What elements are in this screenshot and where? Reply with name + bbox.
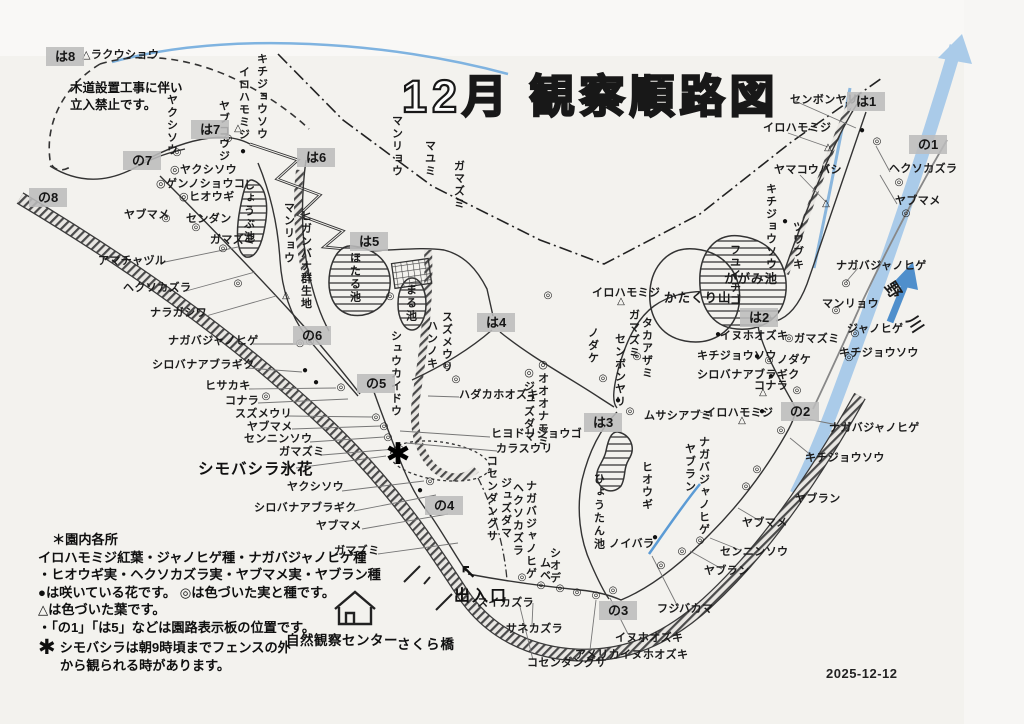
legend-lines: イロハモミジ紅葉・ジャノヒゲ種・ナガバジャノヒゲ種・ヒオウギ実・ヘクソカズラ実・… bbox=[38, 549, 381, 637]
plant-label: ヘクソカズラ bbox=[511, 482, 523, 557]
plant-label: センボンヤリ bbox=[613, 333, 625, 408]
plant-label: ツワブキ bbox=[791, 221, 803, 271]
ring-marker-icon: ◎ bbox=[599, 374, 608, 384]
route-sign-は6: は6 bbox=[297, 148, 335, 167]
plant-label: ナラガシワ bbox=[150, 308, 207, 320]
trails bbox=[140, 104, 947, 600]
plant-label: キチジョウソウ bbox=[255, 53, 267, 141]
ring-marker-icon: ◎ bbox=[337, 383, 346, 393]
plant-label: ナガバジャノヒゲ bbox=[697, 436, 709, 536]
legend-block: ＊園内各所 イロハモミジ紅葉・ジャノヒゲ種・ナガバジャノヒゲ種・ヒオウギ実・ヘク… bbox=[38, 531, 381, 674]
ring-marker-icon: ◎ bbox=[696, 536, 705, 546]
plant-label: ヒサカキ bbox=[205, 381, 251, 393]
plant-label: ガマズミ bbox=[794, 334, 840, 346]
plant-label: ヤマコウバシ bbox=[774, 165, 842, 177]
route-sign-の6: の6 bbox=[293, 326, 331, 345]
tri-marker-icon: △ bbox=[282, 291, 290, 301]
plant-label: イロハモミジ bbox=[592, 288, 660, 300]
ring-marker-icon: ◎ bbox=[537, 581, 546, 591]
plant-label: ◎オオオナモミ bbox=[536, 358, 548, 448]
plant-label: ムサシアブミ bbox=[644, 411, 712, 423]
plant-label: イヌホオズキ bbox=[615, 633, 683, 645]
legend-frost-note-1: シモバシラは朝9時頃までフェンスの外 bbox=[60, 639, 291, 657]
plant-label: コセンダングサ bbox=[485, 455, 497, 543]
plant-label: イヌホオズキ bbox=[720, 331, 788, 343]
ring-marker-icon: ◎ bbox=[873, 137, 882, 147]
ring-marker-icon: ◎ bbox=[380, 422, 389, 432]
route-sign-の7: の7 bbox=[123, 151, 161, 170]
plant-label: ほたる池 bbox=[348, 252, 360, 304]
plant-label: しょうぶ池 bbox=[242, 179, 254, 244]
plant-label: ◎ヤクシソウ bbox=[170, 165, 237, 177]
plant-label: フユイチゴ bbox=[728, 244, 740, 307]
plant-label: センダン bbox=[186, 214, 232, 226]
route-sign-の1: の1 bbox=[909, 135, 947, 154]
tri-marker-icon: △ bbox=[824, 143, 832, 153]
plant-label: ヤクシソウ bbox=[287, 482, 344, 494]
plant-label: フジバカマ bbox=[657, 604, 713, 616]
ring-marker-icon: ◎ bbox=[234, 279, 243, 289]
route-sign-は2: は2 bbox=[740, 308, 778, 327]
entrance-label: 出入口 bbox=[454, 582, 508, 606]
legend-line: ●は咲いている花です。 ◎は色づいた実と種です。 bbox=[38, 584, 381, 602]
plant-label: ノダケ bbox=[586, 327, 598, 365]
plant-label: キチジョウソウ bbox=[839, 348, 919, 360]
ring-marker-icon: ◎ bbox=[777, 426, 786, 436]
ring-marker-icon: ◎ bbox=[592, 591, 601, 601]
construction-notice: 木道設置工事に伴い 立入禁止です。 bbox=[70, 80, 183, 114]
plant-label: ヤブマメ bbox=[742, 518, 788, 530]
plant-label: スズメウリ bbox=[440, 311, 452, 374]
legend-line: ・ヒオウギ実・ヘクソカズラ実・ヤブマメ実・ヤブラン種 bbox=[38, 566, 381, 584]
plant-label: スズメウリ bbox=[235, 409, 292, 421]
map-title: 12月 観察順路図 bbox=[402, 60, 780, 125]
plant-label: キチジョウソウ bbox=[805, 453, 885, 465]
plant-label: ◎ヒオウギ bbox=[179, 192, 235, 204]
ring-marker-icon: ◎ bbox=[842, 279, 851, 289]
plant-label: シロバナアブラギク bbox=[697, 370, 800, 382]
plant-label: コナラ bbox=[225, 396, 259, 408]
route-sign-は5: は5 bbox=[350, 232, 388, 251]
route-sign-の4: の4 bbox=[425, 496, 463, 515]
tri-marker-icon: △ bbox=[822, 199, 830, 209]
plant-label: マンリョウ bbox=[282, 202, 294, 265]
plant-label: ◎ジュズダマ bbox=[522, 366, 534, 443]
plant-label: ナガバジャノヒゲ bbox=[168, 336, 259, 348]
ring-marker-icon: ◎ bbox=[678, 547, 687, 557]
plant-label: △ラクウショウ bbox=[82, 50, 159, 62]
plant-label: ◎ゲンノショウコ bbox=[156, 179, 245, 191]
route-sign-の5: の5 bbox=[357, 374, 395, 393]
ring-marker-icon: ◎ bbox=[793, 386, 802, 396]
ring-marker-icon: ◎ bbox=[609, 586, 618, 596]
legend-frost-note-2: から観られる時があります。 bbox=[60, 657, 381, 675]
construction-notice-line2: 立入禁止です。 bbox=[70, 97, 183, 114]
dot-marker-icon: ● bbox=[302, 366, 308, 376]
frost-flower-label: シモバシラ氷花 bbox=[198, 457, 314, 479]
ring-marker-icon: ◎ bbox=[742, 482, 751, 492]
plant-label: キチジョウソウ bbox=[697, 351, 777, 363]
ring-marker-icon: ◎ bbox=[386, 292, 395, 302]
plant-label: ヤブマメ bbox=[124, 210, 170, 222]
plant-label: アマチャヅル bbox=[98, 256, 166, 268]
plant-label: キチジョウソウ bbox=[764, 183, 776, 271]
plant-label: ヤブラン bbox=[683, 443, 695, 493]
plant-label: サネカズラ bbox=[506, 624, 563, 636]
plant-label: ジュズダマ bbox=[499, 477, 511, 540]
plant-label: ナガバジャノヒゲ bbox=[829, 423, 920, 435]
route-sign-の2: の2 bbox=[781, 402, 819, 421]
plant-label: ヤブマメ bbox=[895, 196, 941, 208]
plant-label: まる池 bbox=[404, 284, 416, 323]
plant-label: マユミ bbox=[423, 140, 435, 178]
route-sign-は4: は4 bbox=[477, 313, 515, 332]
plant-label: センニンソウ bbox=[244, 434, 312, 446]
ring-marker-icon: ◎ bbox=[452, 375, 461, 385]
plant-label: ナガバジャノヒゲ bbox=[836, 261, 927, 273]
plant-label: ムベ bbox=[538, 557, 550, 582]
plant-label: シロバナアブラギク bbox=[254, 503, 357, 515]
ring-marker-icon: ◎ bbox=[262, 392, 271, 402]
plant-label: マンリョウ bbox=[390, 115, 402, 178]
plant-label: ジャノヒゲ bbox=[847, 324, 903, 336]
route-sign-は7: は7 bbox=[191, 120, 229, 139]
ring-marker-icon: ◎ bbox=[573, 588, 582, 598]
plant-label: ガマズミ bbox=[452, 160, 464, 210]
dot-marker-icon: ● bbox=[313, 378, 319, 388]
dot-marker-icon: ● bbox=[240, 147, 246, 157]
ring-marker-icon: ◎ bbox=[544, 291, 553, 301]
plant-label: ヤブラン bbox=[704, 566, 750, 578]
ring-marker-icon: ◎ bbox=[626, 407, 635, 417]
plant-label: ナガバジャノヒゲ bbox=[524, 480, 536, 580]
ring-marker-icon: ◎ bbox=[753, 465, 762, 475]
ring-marker-icon: ◎ bbox=[426, 477, 435, 487]
plant-label: ヤブマメ bbox=[247, 422, 293, 434]
plant-label: ハンノキ bbox=[425, 320, 437, 370]
ring-marker-icon: ◎ bbox=[556, 584, 565, 594]
plant-label: ひょうたん池 bbox=[592, 473, 604, 551]
route-sign-は8: は8 bbox=[46, 47, 84, 66]
legend-line: イロハモミジ紅葉・ジャノヒゲ種・ナガバジャノヒゲ種 bbox=[38, 549, 381, 567]
route-sign-の3: の3 bbox=[599, 601, 637, 620]
route-sign-は1: は1 bbox=[847, 92, 885, 111]
map-date: 2025-12-12 bbox=[826, 666, 898, 681]
legend-line: △は色づいた葉です。 bbox=[38, 601, 381, 619]
small-stream bbox=[649, 484, 700, 554]
dot-marker-icon: ● bbox=[417, 486, 423, 496]
construction-notice-line1: 木道設置工事に伴い bbox=[70, 80, 183, 97]
plant-label: ノダケ bbox=[777, 355, 811, 367]
dot-marker-icon: ● bbox=[782, 217, 788, 227]
plant-label: イロハモミジ bbox=[705, 408, 773, 420]
sakura-bridge-label: さくら橋 bbox=[397, 633, 455, 653]
plant-label: ヘクソカズラ bbox=[123, 283, 191, 295]
ring-marker-icon: ◎ bbox=[657, 561, 666, 571]
star-marker-icon: ✱ bbox=[385, 440, 410, 470]
legend-heading: ＊園内各所 bbox=[52, 531, 381, 549]
ring-marker-icon: ◎ bbox=[902, 209, 911, 219]
route-sign-の8: の8 bbox=[29, 188, 67, 207]
plant-label: かたくり山 bbox=[664, 292, 732, 305]
plant-label: ヤブラン bbox=[795, 494, 841, 506]
plant-label: マンリョウ bbox=[822, 299, 879, 311]
plant-label: ヒガンバナ群生地 bbox=[299, 210, 311, 310]
plant-label: コナラ bbox=[754, 381, 788, 393]
plant-label: ヘクソカズラ bbox=[889, 164, 957, 176]
plant-label: イロハモミジ bbox=[237, 66, 249, 141]
frost-asterisk-icon: ✱ bbox=[38, 639, 56, 657]
plant-label: ガマズミ bbox=[627, 309, 639, 359]
ring-marker-icon: ◎ bbox=[895, 178, 904, 188]
dot-marker-icon: ● bbox=[859, 126, 865, 136]
route-sign-は3: は3 bbox=[584, 413, 622, 432]
plant-label: センニンソウ bbox=[720, 547, 788, 559]
plant-label: ヒオウギ bbox=[640, 461, 652, 511]
plant-label: ノイバラ bbox=[609, 539, 654, 551]
plant-label: タカアザミ bbox=[640, 317, 652, 380]
observation-route-map-page: { "title": "12月 観察順路図", "date": "2025-12… bbox=[0, 0, 1024, 724]
legend-line: ・「の1」「は5」などは園路表示板の位置です。 bbox=[38, 619, 381, 637]
plant-label: アメリカイヌホオズキ bbox=[575, 650, 688, 662]
plant-label: シロバナアブラギク bbox=[152, 360, 255, 372]
